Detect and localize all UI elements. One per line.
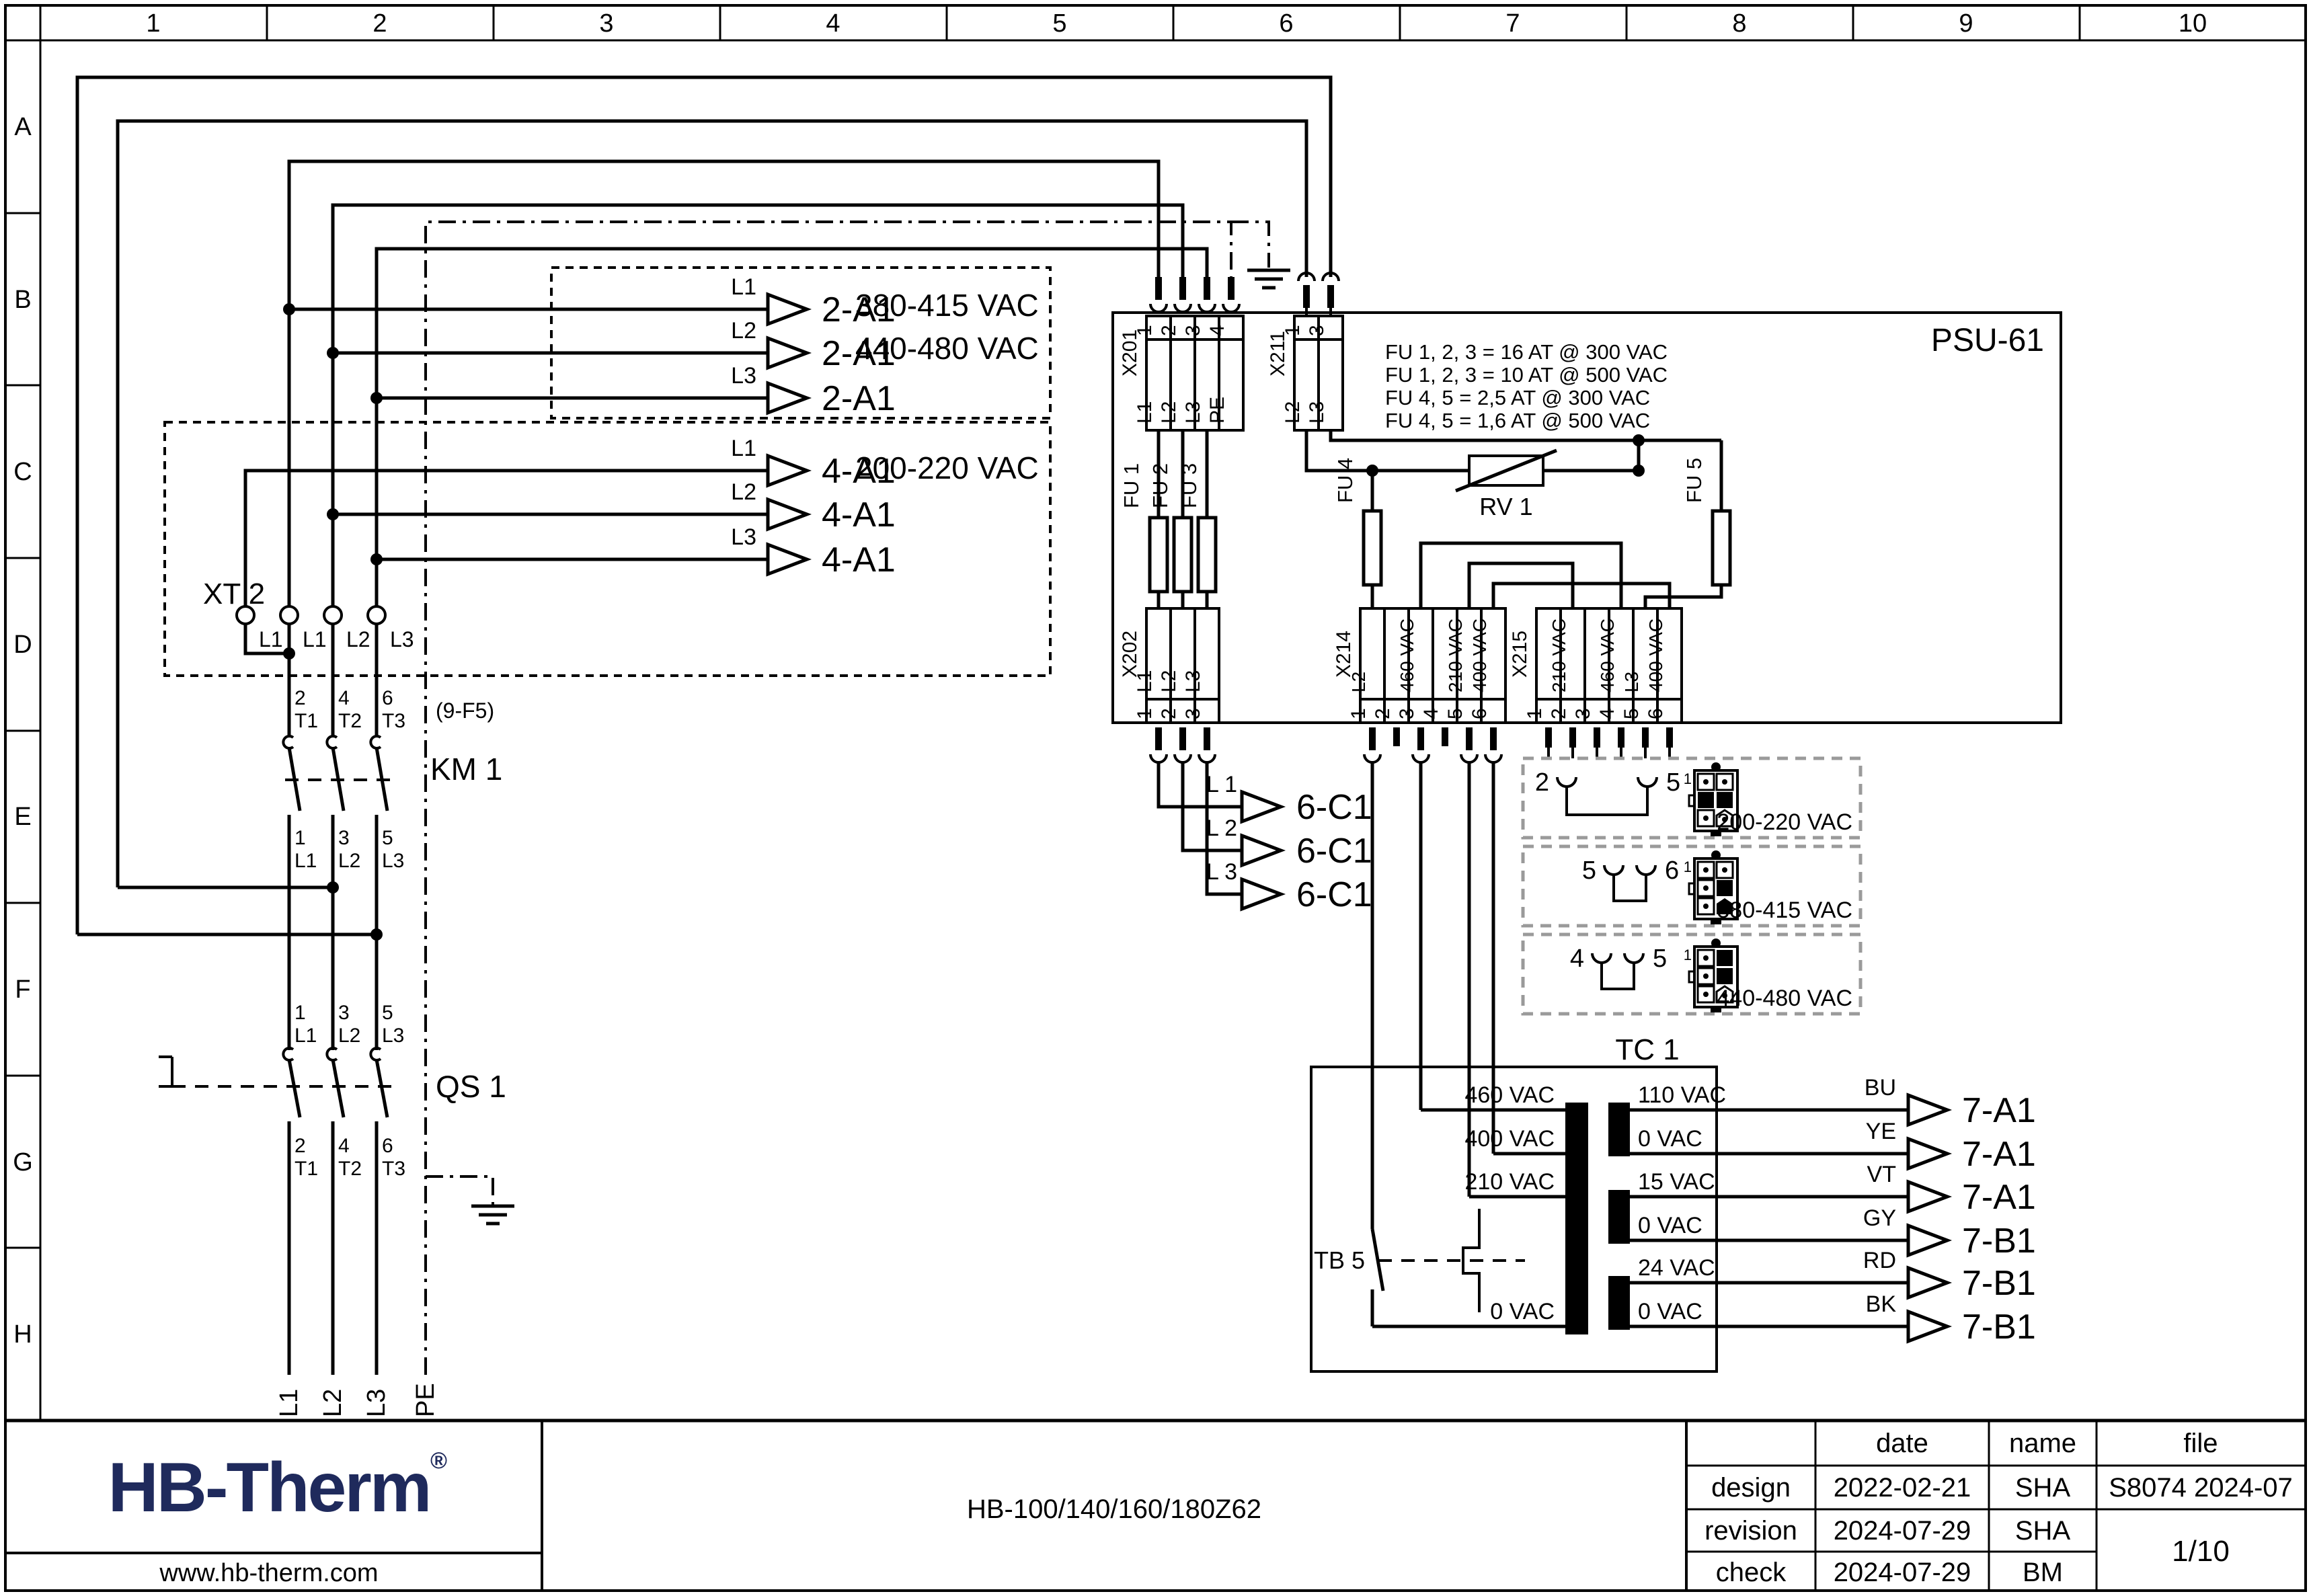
- col-label: 9: [1959, 9, 1973, 38]
- wire-label: L3: [731, 524, 756, 550]
- pin-number: 2: [1372, 708, 1394, 719]
- arrow-6c1: [1242, 836, 1281, 865]
- fuse-fu4: FU 4: [1333, 458, 1381, 608]
- pin-label: L3: [1306, 401, 1328, 424]
- company-logo: HB-Therm: [108, 1449, 430, 1527]
- wire-pe-earth-stub: [426, 1176, 493, 1205]
- wire-pe-ground-stub: [1231, 222, 1269, 268]
- secondary-winding: [1608, 1190, 1630, 1244]
- row-label: E: [14, 803, 31, 831]
- supply-label: L2: [319, 1389, 347, 1417]
- pin-number: 1: [1134, 325, 1156, 336]
- pin-number: 5: [1620, 708, 1643, 719]
- wire-l2: [333, 205, 1183, 606]
- pin-number: 4: [1206, 325, 1228, 336]
- wire-label: L2: [731, 318, 756, 344]
- pin-number: 5: [382, 1002, 393, 1024]
- supply-label: L3: [362, 1389, 391, 1417]
- row-label-design: design: [1711, 1473, 1791, 1503]
- terminal-label: L3: [390, 627, 414, 651]
- primary-winding: [1565, 1103, 1588, 1334]
- contact-blade: [289, 1060, 300, 1117]
- earth-ground-symbol: [471, 1206, 514, 1224]
- pin-number: 5: [382, 827, 393, 849]
- check-name: BM: [2023, 1558, 2063, 1587]
- x211-block: X211 1 3 L2 L3: [1267, 273, 1343, 430]
- pin-number: 3: [1572, 708, 1594, 719]
- wire-color-label: VT: [1867, 1162, 1896, 1187]
- plug-connector: [1364, 727, 1501, 762]
- arrow-2a1: [768, 338, 807, 368]
- pin-number: 3: [1396, 708, 1418, 719]
- tc1-name: TC 1: [1615, 1033, 1679, 1066]
- title-block: HB-Therm ® www.hb-therm.com HB-100/140/1…: [5, 1421, 2306, 1591]
- pin-label: 400 VAC: [1469, 619, 1490, 692]
- arrow-2a1: [768, 383, 807, 413]
- header-name: name: [2009, 1429, 2076, 1458]
- row-label-check: check: [1716, 1558, 1787, 1587]
- secondary-tap-label: 24 VAC: [1638, 1255, 1715, 1281]
- wire-label: L2: [731, 479, 756, 505]
- connector-pin1: 1: [1684, 859, 1692, 875]
- pin-label: T2: [338, 710, 362, 732]
- incoming-labels: L1 L2 L3 PE: [275, 1383, 440, 1417]
- feed-wires: [77, 77, 1331, 1375]
- qs1-name: QS 1: [436, 1069, 506, 1104]
- arrow-target: 4-A1: [822, 495, 896, 534]
- website: www.hb-therm.com: [159, 1559, 378, 1587]
- arrow-target: 7-A1: [1962, 1135, 2036, 1174]
- voltage-range: 440-480 VAC: [855, 331, 1039, 366]
- sheet-frame: 1 2 3 4 5 6 7 8 9 10 A B C D E F G H: [5, 5, 2306, 1591]
- pin-label: T1: [295, 710, 318, 732]
- col-label: 2: [373, 9, 387, 38]
- arrow-target: 7-B1: [1962, 1308, 2036, 1347]
- col-label: 5: [1052, 9, 1066, 38]
- plug-connector: [1150, 727, 1215, 762]
- arrow-2a1: [768, 294, 807, 324]
- contact-pivot: [370, 736, 381, 748]
- bridge-pin: 5: [1582, 856, 1596, 885]
- pin-number: 6: [382, 687, 393, 709]
- tb5-label: TB 5: [1314, 1246, 1365, 1274]
- selector-option-380-415: 5 6 1 380-415 VAC: [1523, 846, 1860, 926]
- pin-number: 4: [338, 1135, 350, 1157]
- fuse-label: FU 1: [1120, 463, 1143, 508]
- arrow-7b1: [1908, 1226, 1947, 1255]
- revision-name: SHA: [2015, 1516, 2071, 1546]
- terminal-circle: [368, 606, 385, 624]
- fuse-label: FU 5: [1682, 458, 1706, 503]
- arrow-7a1: [1908, 1182, 1947, 1211]
- contact-blade: [333, 1060, 344, 1117]
- arrow-target: 7-B1: [1962, 1222, 2036, 1261]
- km1-contactor: 2 T1 4 T2 6 T3 1 L1 3 L2 5 L3 (9-F5) KM …: [283, 687, 502, 872]
- page-number: 1/10: [2172, 1535, 2230, 1568]
- pin-number: 6: [1468, 708, 1491, 719]
- terminal-circle: [280, 606, 298, 624]
- primary-tap-label: 0 VAC: [1490, 1299, 1555, 1324]
- col-label: 4: [826, 9, 840, 38]
- pin-number: 1: [1134, 708, 1156, 719]
- terminal-circle: [324, 606, 342, 624]
- pin-number: 4: [1596, 708, 1618, 719]
- arrow-4a1: [768, 500, 807, 529]
- pin-label: L3: [382, 850, 404, 872]
- km1-name: KM 1: [430, 752, 502, 787]
- arrow-6c1: [1242, 879, 1281, 909]
- arrow-7a1: [1908, 1139, 1947, 1168]
- psu-name: PSU-61: [1931, 323, 2044, 358]
- arrow-target: 7-A1: [1962, 1091, 2036, 1130]
- wire-color-label: YE: [1866, 1119, 1896, 1144]
- pin-label: L3: [1182, 670, 1204, 692]
- wire-label: L1: [731, 436, 756, 461]
- arrow-target: 7-A1: [1962, 1178, 2036, 1217]
- fuse-note: FU 1, 2, 3 = 10 AT @ 500 VAC: [1385, 363, 1668, 387]
- registered-mark: ®: [430, 1448, 447, 1474]
- schematic-sheet: 1 2 3 4 5 6 7 8 9 10 A B C D E F G H: [0, 0, 2311, 1596]
- bridge-wire: [1567, 787, 1647, 815]
- revision-date: 2024-07-29: [1834, 1516, 1971, 1546]
- block-name: X214: [1333, 631, 1355, 678]
- bridge-hook: [1638, 777, 1657, 787]
- voltage-range: 200-220 VAC: [855, 450, 1039, 485]
- pin-label: 210 VAC: [1549, 619, 1569, 692]
- bridge-wire: [1602, 963, 1634, 989]
- lv-voltage-box: L1 L2 L3 4-A1 4-A1 4-A1 200-220 VAC XT 2…: [165, 422, 1050, 676]
- fuse-note: FU 1, 2, 3 = 16 AT @ 300 VAC: [1385, 340, 1668, 364]
- pin-label: L1: [295, 1025, 317, 1047]
- pin-label: T3: [382, 1158, 405, 1180]
- arrow-7a1: [1908, 1095, 1947, 1125]
- pin-number: 5: [1444, 708, 1466, 719]
- connector-pin1: 1: [1684, 770, 1692, 787]
- col-label: 10: [2179, 9, 2207, 38]
- bridge-pin: 4: [1570, 945, 1584, 973]
- pin-number: 3: [1182, 325, 1204, 336]
- block-name: X211: [1267, 331, 1289, 376]
- pin-label: L3: [1182, 401, 1204, 424]
- c1-outputs: L 1 L 2 L 3 6-C1 6-C1 6-C1: [1150, 727, 1372, 914]
- fuse-label: FU 3: [1177, 463, 1201, 508]
- x214-block: X214 L2 460 VAC 210 VAC 400 VAC 1 2 3 4 …: [1333, 608, 1505, 723]
- pin-label: 210 VAC: [1445, 619, 1466, 692]
- pin-number: 6: [382, 1135, 393, 1157]
- design-date: 2022-02-21: [1834, 1473, 1971, 1503]
- pin-number: 1: [295, 1002, 306, 1024]
- x201-block: X201 1 2 3 4 L1 L2 L3 PE: [1119, 277, 1243, 430]
- primary-tap-label: 460 VAC: [1464, 1082, 1555, 1108]
- selector-voltage: 440-480 VAC: [1717, 986, 1852, 1011]
- col-label: 7: [1505, 9, 1520, 38]
- pin-number: 1: [1347, 708, 1370, 719]
- pin-label: L1: [1134, 670, 1156, 692]
- row-label: A: [14, 113, 32, 141]
- primary-tap-label: 400 VAC: [1464, 1126, 1555, 1152]
- secondary-tap-label: 15 VAC: [1638, 1169, 1715, 1195]
- arrow-target: 6-C1: [1296, 788, 1372, 827]
- bridge-hook: [1592, 953, 1611, 963]
- row-label: F: [15, 975, 30, 1004]
- bridge-wire: [1614, 875, 1646, 901]
- pin-label: T2: [338, 1158, 362, 1180]
- bridge-hook: [1604, 865, 1623, 875]
- arrow-4a1: [768, 456, 807, 485]
- pin-label: L1: [295, 850, 317, 872]
- wire-color-label: RD: [1863, 1248, 1896, 1273]
- row-label: B: [14, 286, 31, 314]
- pin-number: 6: [1645, 708, 1667, 719]
- plug-connector: [1150, 277, 1239, 312]
- wire-color-label: GY: [1863, 1205, 1896, 1231]
- pin-label: L3: [1621, 672, 1642, 692]
- fuse-fu1: FU 1: [1120, 430, 1167, 608]
- handle-symbol: [159, 1057, 172, 1086]
- bridge-pin: 5: [1666, 768, 1680, 797]
- rv1-varistor: RV 1: [1306, 430, 1721, 520]
- secondary-tap-label: 0 VAC: [1638, 1299, 1702, 1324]
- pin-number: 1: [1282, 325, 1304, 336]
- bridge-pin: 6: [1665, 856, 1679, 885]
- plug-connector: [1298, 273, 1339, 316]
- arrow-7b1: [1908, 1268, 1947, 1298]
- wire-label: L3: [731, 363, 756, 389]
- psu-box: PSU-61 FU 1, 2, 3 = 16 AT @ 300 VAC FU 1…: [1113, 273, 2061, 723]
- xt2-label: XT 2: [203, 577, 265, 610]
- wire-color-label: BK: [1866, 1291, 1897, 1317]
- arrow-target: 6-C1: [1296, 832, 1372, 871]
- terminal-label: L2: [346, 627, 370, 651]
- pin-label: T3: [382, 710, 405, 732]
- jumper-wires: [1421, 543, 1670, 608]
- pin-label: L2: [1158, 401, 1180, 424]
- col-label: 3: [599, 9, 613, 38]
- col-label: 1: [146, 9, 160, 38]
- row-label-revision: revision: [1705, 1516, 1797, 1546]
- row-label: D: [13, 631, 32, 659]
- row-label: H: [13, 1320, 32, 1349]
- bridge-pin: 5: [1653, 945, 1667, 973]
- x214-down-wires: [1364, 727, 1501, 1229]
- connector-pin1: 1: [1684, 947, 1692, 963]
- check-date: 2024-07-29: [1834, 1558, 1971, 1587]
- contact-pivot: [327, 736, 337, 748]
- wire-4a1-l1: [245, 471, 768, 606]
- pin-number: 2: [295, 1135, 306, 1157]
- arrow-target: 6-C1: [1296, 875, 1372, 914]
- bridge-hook: [1637, 865, 1655, 875]
- pin-number: 3: [1182, 708, 1204, 719]
- contact-blade: [377, 1060, 387, 1117]
- terminal-label: L1: [303, 627, 327, 651]
- arrow-6c1: [1242, 792, 1281, 822]
- wire-l1: [289, 161, 1159, 606]
- pin-label: L2: [1348, 672, 1369, 692]
- terminal-label: L1: [259, 627, 283, 651]
- model-number: HB-100/140/160/180Z62: [967, 1494, 1261, 1524]
- pin-number: 3: [1306, 325, 1328, 336]
- pin-number: 1: [1524, 708, 1546, 719]
- pin-number: 4: [1420, 708, 1442, 719]
- x215-down-wires: [1545, 727, 1673, 758]
- wire-label: L 2: [1206, 815, 1237, 841]
- secondary-tap-label: 0 VAC: [1638, 1213, 1702, 1238]
- wire-label: L1: [731, 274, 756, 300]
- primary-tap-label: 210 VAC: [1464, 1169, 1555, 1195]
- rv1-label: RV 1: [1479, 493, 1532, 520]
- header-file: file: [2183, 1429, 2218, 1458]
- fuse-note: FU 4, 5 = 1,6 AT @ 500 VAC: [1385, 409, 1650, 432]
- pin-number: 4: [338, 687, 350, 709]
- terminal-circle: [237, 606, 254, 624]
- secondary-tap-label: 0 VAC: [1638, 1126, 1702, 1152]
- bridge-hook: [1557, 777, 1576, 787]
- pin-number: 2: [1158, 708, 1180, 719]
- wire-label: L 1: [1206, 772, 1237, 797]
- header-date: date: [1876, 1429, 1928, 1458]
- pin-label: L2: [1282, 401, 1304, 424]
- selector-option-200-220: 2 5 1 200-220 VAC: [1523, 758, 1860, 838]
- col-label: 6: [1279, 9, 1293, 38]
- x215-block: X215 210 VAC 460 VAC L3 400 VAC 1 2 3 4 …: [1509, 608, 1682, 723]
- arrow-target: 7-B1: [1962, 1264, 2036, 1303]
- fuse-label: FU 4: [1333, 458, 1357, 503]
- supply-label: PE: [412, 1383, 440, 1417]
- supply-label: L1: [275, 1389, 303, 1417]
- fuse-note: FU 4, 5 = 2,5 AT @ 300 VAC: [1385, 386, 1650, 409]
- arrow-target: 2-A1: [822, 379, 896, 418]
- voltage-range: 380-415 VAC: [855, 288, 1039, 323]
- pin-label: L2: [338, 850, 360, 872]
- selector-voltage: 380-415 VAC: [1717, 897, 1852, 923]
- pin-label: PE: [1206, 397, 1228, 424]
- design-name: SHA: [2015, 1473, 2071, 1503]
- contact-pivot: [283, 736, 293, 748]
- pin-label: 400 VAC: [1645, 619, 1666, 692]
- pin-number: 2: [295, 687, 306, 709]
- fuse-label: FU 2: [1148, 463, 1172, 508]
- bridge-hook: [1624, 953, 1643, 963]
- pin-label: 460 VAC: [1397, 619, 1417, 692]
- pin-label: T1: [295, 1158, 318, 1180]
- column-labels: 1 2 3 4 5 6 7 8 9 10: [146, 9, 2207, 38]
- pin-label: L1: [1134, 401, 1156, 424]
- arrow-4a1: [768, 545, 807, 574]
- pin-label: L2: [338, 1025, 360, 1047]
- pin-label: 460 VAC: [1597, 619, 1618, 692]
- pin-label: L3: [382, 1025, 404, 1047]
- pin-number: 2: [1548, 708, 1570, 719]
- wire-color-label: BU: [1865, 1075, 1896, 1101]
- row-label: G: [13, 1148, 33, 1176]
- selector-voltage: 200-220 VAC: [1717, 809, 1852, 835]
- block-name: X215: [1509, 631, 1531, 678]
- secondary-winding: [1608, 1103, 1630, 1156]
- bridge-pin: 2: [1535, 768, 1549, 797]
- column-ruler: [267, 5, 2080, 40]
- plug-connector: [1545, 727, 1673, 748]
- pin-number: 2: [1158, 325, 1180, 336]
- row-label: C: [13, 458, 32, 486]
- pin-number: 3: [338, 1002, 350, 1024]
- arrow-target: 4-A1: [822, 541, 896, 580]
- secondary-winding: [1608, 1276, 1630, 1330]
- pin-number: 1: [295, 827, 306, 849]
- selector-option-440-480: 4 5 1 440-480 VAC: [1523, 934, 1860, 1014]
- ground-symbol: [1247, 270, 1290, 288]
- secondary-tap-label: 110 VAC: [1638, 1082, 1726, 1108]
- x202-block: X202 L1 L2 L3 1 2 3: [1119, 608, 1219, 723]
- col-label: 8: [1732, 9, 1746, 38]
- km1-ref: (9-F5): [436, 699, 494, 723]
- row-ruler: [5, 213, 40, 1248]
- file-value: S8074 2024-07: [2109, 1473, 2293, 1503]
- wire-label: L 3: [1206, 859, 1237, 885]
- pin-label: L2: [1158, 670, 1180, 692]
- arrow-7b1: [1908, 1312, 1947, 1341]
- pin-number: 3: [338, 827, 350, 849]
- hv-voltage-box: L1 L2 L3 2-A1 2-A1 2-A1 380-415 VAC 440-…: [551, 268, 1050, 418]
